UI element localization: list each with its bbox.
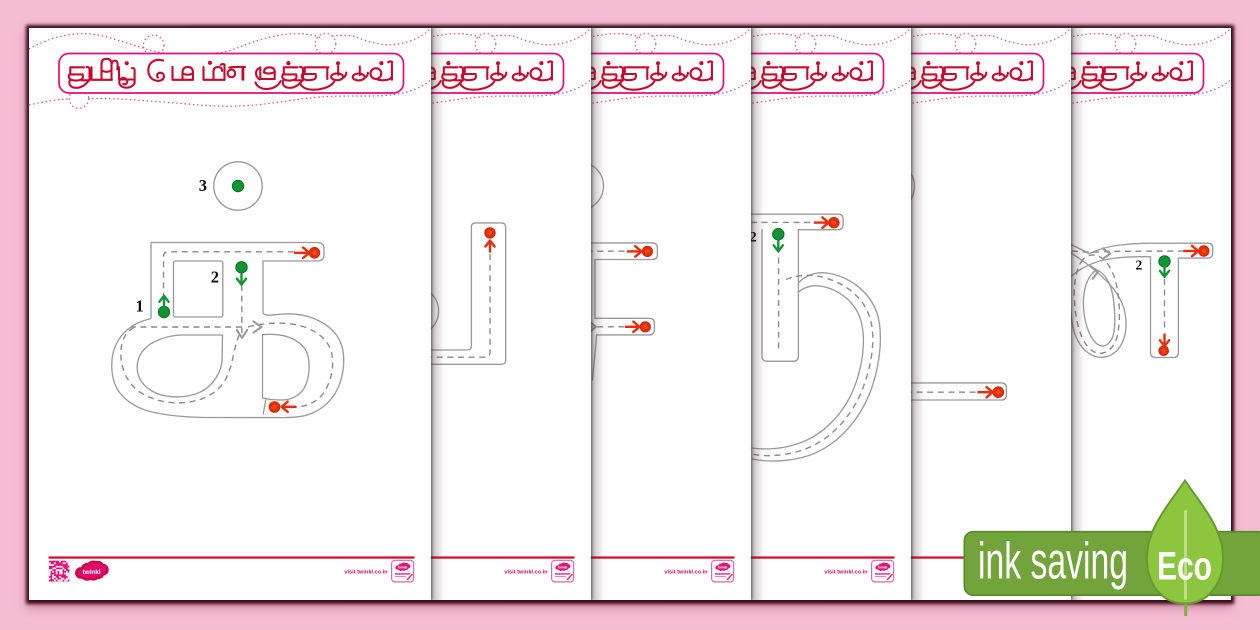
svg-text:2: 2	[211, 267, 219, 286]
svg-text:1: 1	[136, 297, 144, 316]
svg-text:Eco: Eco	[1157, 545, 1212, 589]
svg-text:3: 3	[199, 176, 207, 195]
svg-text:ink saving: ink saving	[978, 533, 1128, 591]
svg-text:2: 2	[1136, 258, 1143, 273]
